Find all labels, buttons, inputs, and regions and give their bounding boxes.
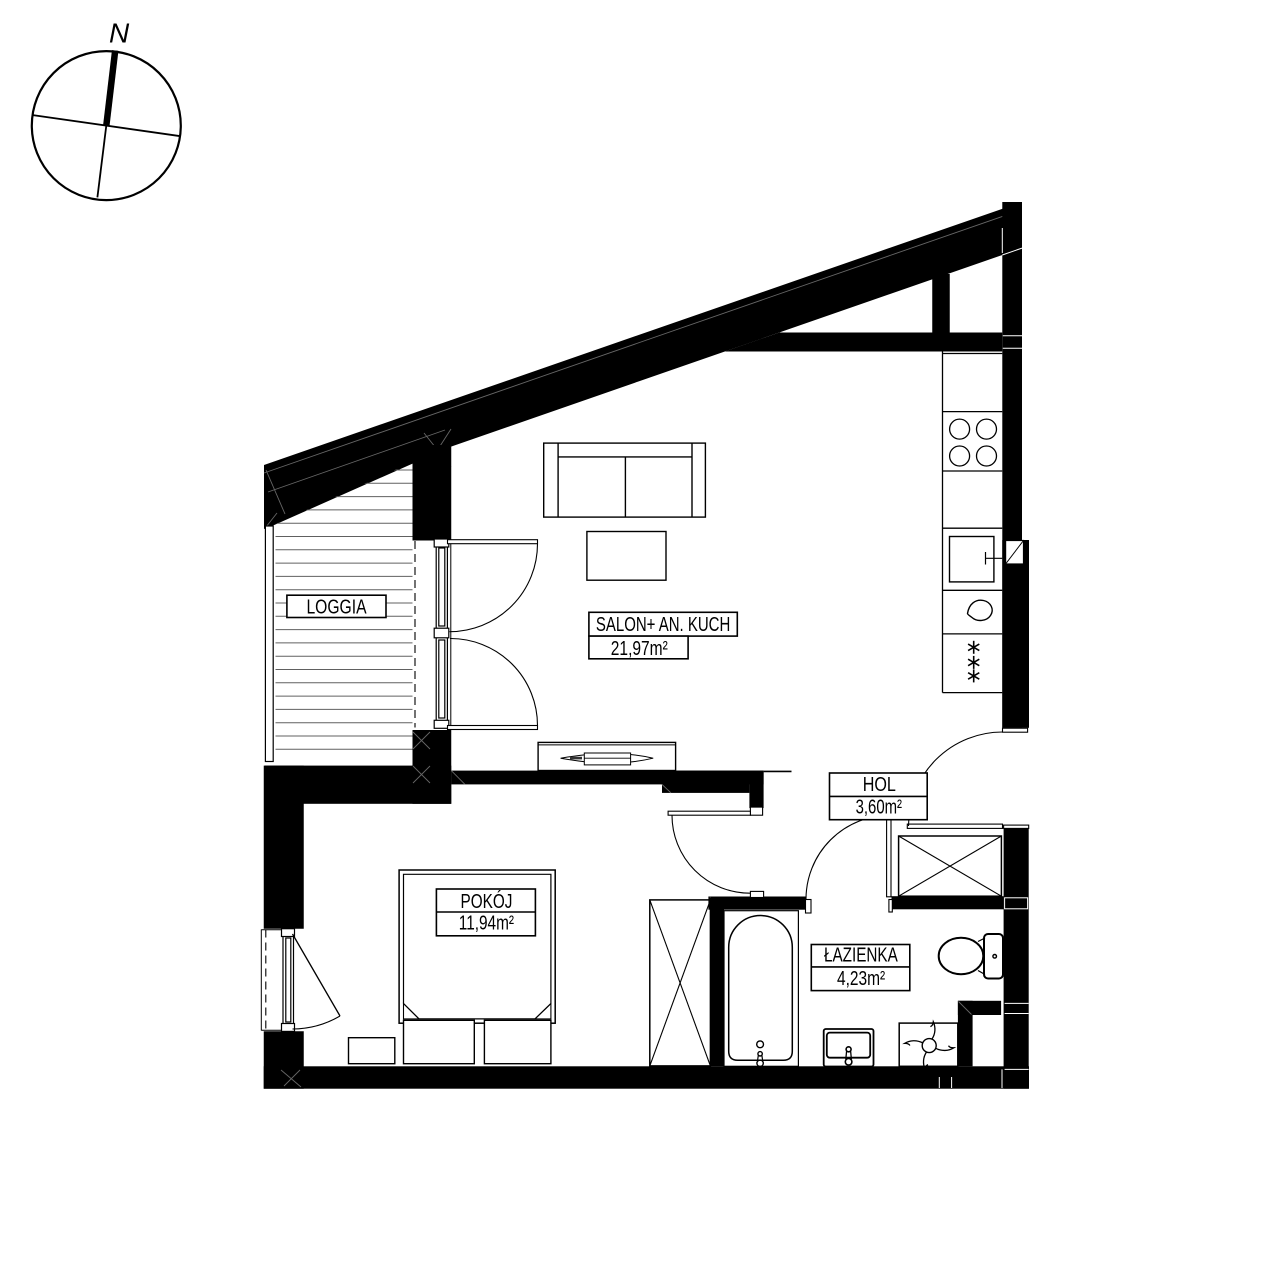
svg-text:LOGGIA: LOGGIA [306, 596, 367, 618]
svg-text:POKÓJ: POKÓJ [461, 890, 513, 913]
svg-text:HOL: HOL [863, 773, 896, 796]
svg-text:SALON+ AN. KUCH: SALON+ AN. KUCH [596, 613, 730, 636]
svg-text:ŁAZIENKA: ŁAZIENKA [824, 945, 898, 967]
svg-text:N: N [109, 18, 130, 49]
svg-text:3,60m²: 3,60m² [856, 796, 903, 819]
svg-text:11,94m²: 11,94m² [459, 912, 514, 935]
svg-text:21,97m²: 21,97m² [611, 637, 668, 660]
svg-text:4,23m²: 4,23m² [837, 967, 885, 990]
